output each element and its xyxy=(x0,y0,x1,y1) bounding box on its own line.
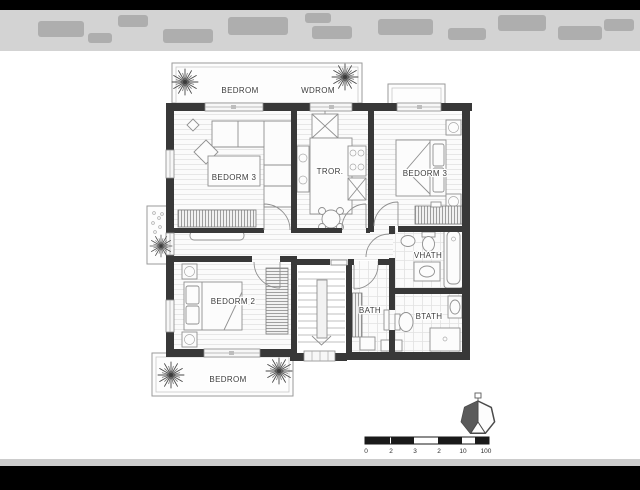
entry-step xyxy=(304,351,335,361)
letterbox-top xyxy=(0,0,640,51)
scale-tick: 10 xyxy=(459,448,467,455)
scale-bar: 0 2 3 2 10 100 xyxy=(364,437,492,455)
label-balcony-top-left: BEDROM xyxy=(221,86,258,95)
window xyxy=(166,300,174,332)
label-bathroom-left: BATH xyxy=(359,306,381,315)
scale-tick: 3 xyxy=(413,448,417,455)
label-kitchen: TROR. xyxy=(317,167,344,176)
screenshot-root: BEDROM WDROM BEDORM 3 TROR. BEDORM 3 VHA… xyxy=(0,0,640,490)
label-bedroom2: BEDORM 2 xyxy=(211,297,256,306)
label-balcony-bottom: BEDROM xyxy=(209,375,246,384)
label-bathroom-top: VHATH xyxy=(414,251,442,260)
label-bedroom3-right: BEDORM 3 xyxy=(403,169,448,178)
balcony-top xyxy=(172,63,362,103)
north-compass-icon xyxy=(461,393,494,433)
window xyxy=(204,349,260,357)
letterbox-bottom xyxy=(0,459,640,490)
label-bathroom-right: BTATH xyxy=(416,312,443,321)
bay-window xyxy=(388,84,445,105)
label-balcony-top-right: WDROM xyxy=(301,86,335,95)
window xyxy=(205,103,263,111)
window xyxy=(310,103,352,111)
window xyxy=(166,150,174,178)
scale-tick: 2 xyxy=(389,448,393,455)
window xyxy=(397,103,441,111)
window xyxy=(166,233,174,255)
label-bedroom3-left: BEDORM 3 xyxy=(212,173,257,182)
scale-tick: 0 xyxy=(364,448,368,455)
scale-tick: 2 xyxy=(437,448,441,455)
floor-plan-drawing: BEDROM WDROM BEDORM 3 TROR. BEDORM 3 VHA… xyxy=(0,0,640,490)
scale-tick: 100 xyxy=(481,448,492,455)
